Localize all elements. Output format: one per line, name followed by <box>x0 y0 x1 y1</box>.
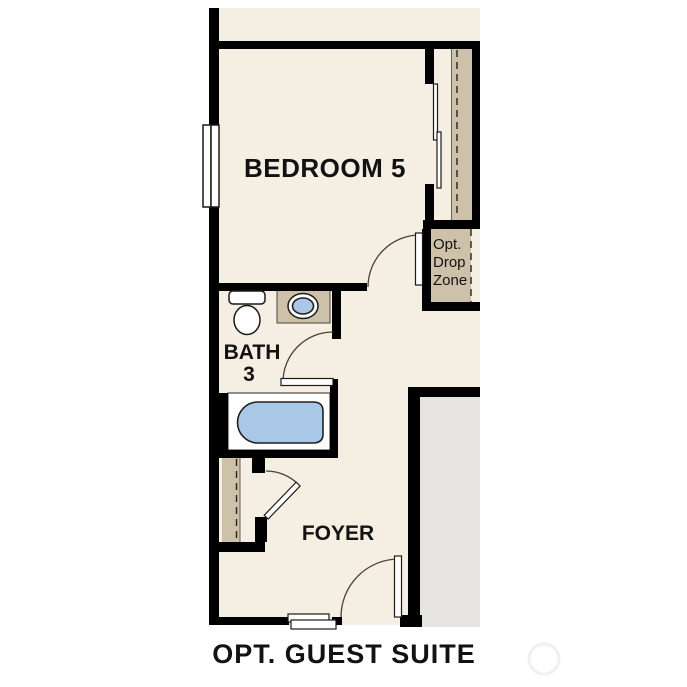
bathtub-icon <box>238 402 324 443</box>
floor-plan-page: BEDROOM 5 BATH 3 FOYER Opt. Drop Zone OP… <box>0 0 687 687</box>
bedroom-label: BEDROOM 5 <box>244 153 406 183</box>
sink-icon <box>288 294 318 319</box>
closet-foyer <box>222 458 240 542</box>
drop-zone-label-line3: Zone <box>433 272 467 289</box>
adjacent-room-gray <box>420 395 480 627</box>
drop-zone-label-line1: Opt. <box>433 236 461 253</box>
entry-step-icon <box>288 614 336 629</box>
foyer-label: FOYER <box>302 522 374 545</box>
window-icon <box>203 125 219 207</box>
closet-bedroom <box>451 48 472 220</box>
floor-plan-svg: BEDROOM 5 BATH 3 FOYER Opt. Drop Zone OP… <box>0 0 687 687</box>
drop-zone-label-line2: Drop <box>433 254 466 271</box>
bath-label: BATH <box>224 341 281 364</box>
bath-number-label: 3 <box>243 363 255 386</box>
watermark-circle <box>529 644 559 674</box>
plan-caption: OPT. GUEST SUITE <box>212 639 476 669</box>
